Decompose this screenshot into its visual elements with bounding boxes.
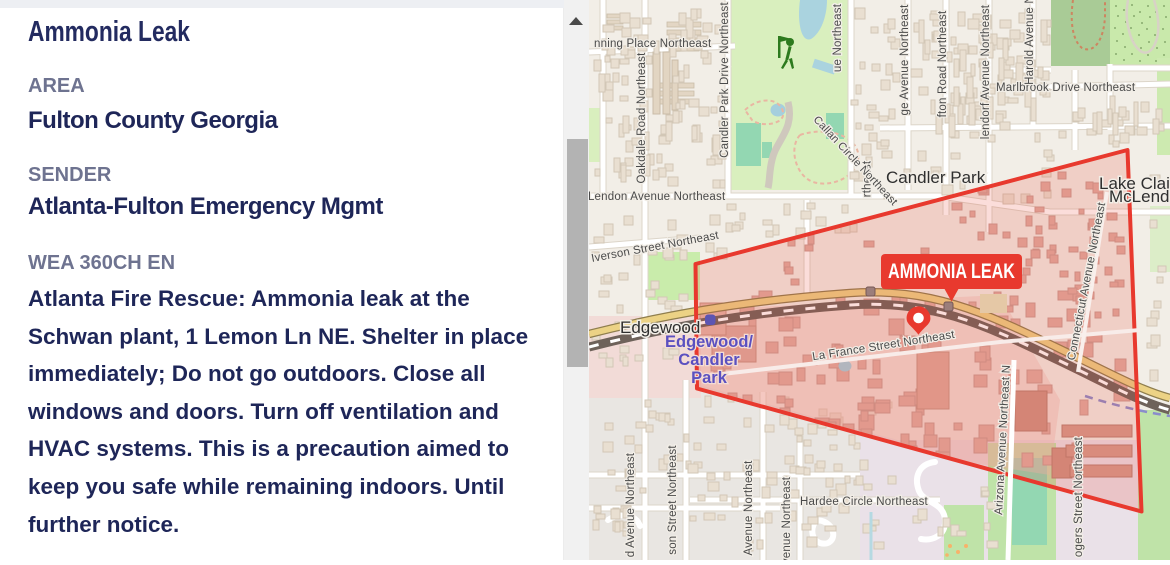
svg-text:ue Northeast: ue Northeast (832, 3, 844, 72)
svg-text:d Avenue Northeast: d Avenue Northeast (625, 452, 637, 557)
svg-text:Candler Park Drive Northeast: Candler Park Drive Northeast (719, 1, 731, 157)
svg-text:son Street Northeast: son Street Northeast (667, 445, 679, 555)
svg-text:lendorf Avenue Northeast: lendorf Avenue Northeast (980, 4, 992, 139)
svg-text:Harold Avenue N: Harold Avenue N (1024, 0, 1036, 85)
svg-text:McLendo: McLendo (1109, 187, 1170, 206)
svg-text:Park: Park (691, 369, 728, 387)
svg-text:fton Road Northeast: fton Road Northeast (937, 10, 949, 117)
svg-text:Candler: Candler (678, 351, 740, 369)
svg-text:ogers Street Northeast: ogers Street Northeast (1073, 436, 1085, 557)
svg-text:ge Avenue Northeast: ge Avenue Northeast (899, 4, 911, 116)
svg-text:Edgewood/: Edgewood/ (665, 333, 753, 351)
svg-text:nning Place Northeast: nning Place Northeast (594, 38, 712, 50)
svg-text:Hardee Circle Northeast: Hardee Circle Northeast (800, 496, 929, 508)
svg-text:Oakdale Road Northeast: Oakdale Road Northeast (636, 52, 648, 184)
svg-text:Marlbrook Drive Northeast: Marlbrook Drive Northeast (996, 82, 1136, 94)
svg-text:ey Avenue Northeast: ey Avenue Northeast (781, 476, 793, 560)
svg-text:AMMONIA LEAK: AMMONIA LEAK (888, 259, 1015, 283)
svg-text:cLendon Avenue Northeast: cLendon Avenue Northeast (589, 191, 726, 203)
svg-text:Avenue Northeast: Avenue Northeast (743, 460, 755, 556)
svg-text:Candler Park: Candler Park (886, 168, 986, 187)
